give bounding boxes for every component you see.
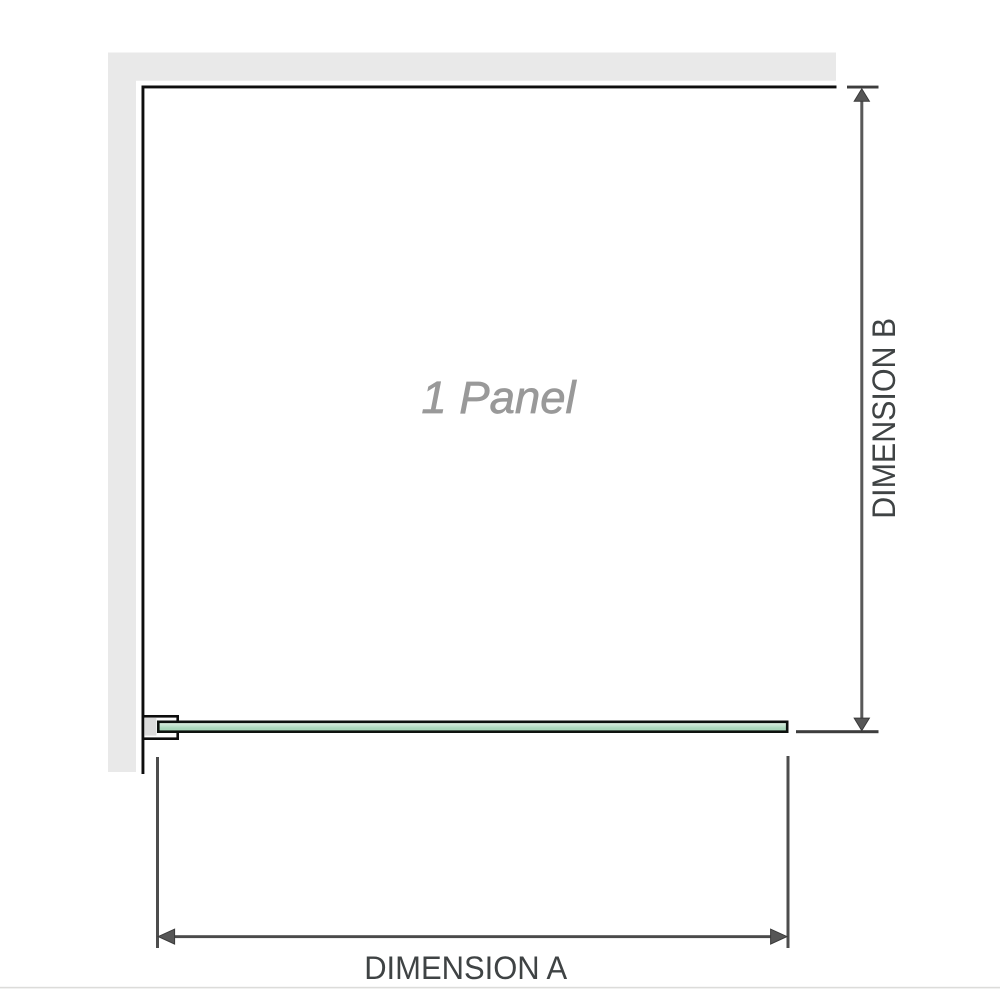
svg-text:DIMENSION B: DIMENSION B <box>866 318 902 519</box>
svg-text:1 Panel: 1 Panel <box>421 372 577 423</box>
svg-text:DIMENSION A: DIMENSION A <box>364 950 567 986</box>
